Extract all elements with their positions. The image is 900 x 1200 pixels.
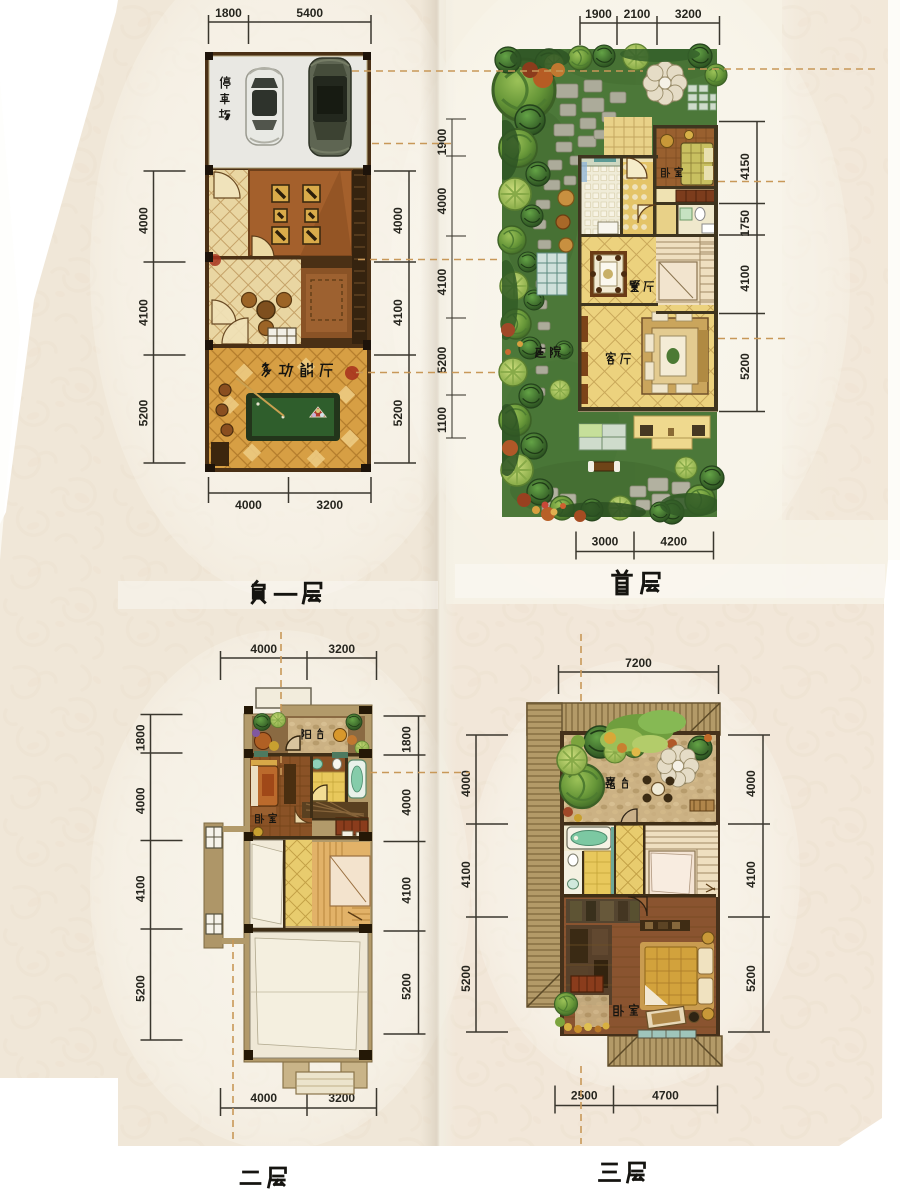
svg-text:5200: 5200 [738, 353, 752, 380]
svg-text:5200: 5200 [391, 399, 405, 426]
svg-text:5200: 5200 [134, 975, 148, 1002]
svg-text:5200: 5200 [459, 965, 473, 992]
svg-text:4700: 4700 [652, 1089, 679, 1103]
svg-text:4100: 4100 [744, 861, 758, 888]
svg-text:4000: 4000 [235, 498, 262, 512]
svg-text:4000: 4000 [435, 187, 449, 214]
svg-text:1100: 1100 [435, 407, 449, 433]
svg-text:4100: 4100 [400, 877, 414, 904]
svg-text:4000: 4000 [391, 207, 405, 234]
svg-text:3200: 3200 [316, 498, 343, 512]
svg-text:5200: 5200 [744, 965, 758, 992]
svg-text:4100: 4100 [391, 299, 405, 326]
svg-text:4000: 4000 [250, 642, 277, 656]
svg-text:1750: 1750 [738, 210, 752, 237]
svg-text:3000: 3000 [592, 535, 619, 549]
svg-text:4100: 4100 [738, 265, 752, 292]
svg-text:4000: 4000 [400, 789, 414, 816]
svg-text:3200: 3200 [328, 642, 355, 656]
svg-text:4100: 4100 [435, 268, 449, 295]
svg-text:4100: 4100 [134, 875, 148, 902]
svg-text:1800: 1800 [215, 6, 242, 20]
svg-text:4000: 4000 [134, 787, 148, 814]
svg-text:4000: 4000 [744, 770, 758, 797]
svg-text:1800: 1800 [400, 726, 414, 753]
svg-text:4000: 4000 [250, 1091, 277, 1105]
svg-text:4200: 4200 [660, 535, 687, 549]
svg-text:1900: 1900 [585, 7, 612, 21]
svg-text:4000: 4000 [459, 770, 473, 797]
svg-text:5200: 5200 [400, 973, 414, 1000]
svg-text:4100: 4100 [459, 861, 473, 888]
svg-text:5200: 5200 [137, 399, 151, 426]
svg-text:4100: 4100 [137, 299, 151, 326]
svg-text:5400: 5400 [296, 6, 323, 20]
svg-text:4000: 4000 [137, 207, 151, 234]
svg-text:2100: 2100 [624, 7, 651, 21]
svg-text:4150: 4150 [738, 153, 752, 180]
svg-text:7200: 7200 [625, 656, 652, 670]
svg-text:1900: 1900 [435, 128, 449, 155]
svg-text:2500: 2500 [571, 1089, 598, 1103]
svg-text:3200: 3200 [675, 7, 702, 21]
svg-text:1800: 1800 [134, 724, 148, 751]
svg-text:5200: 5200 [435, 346, 449, 373]
